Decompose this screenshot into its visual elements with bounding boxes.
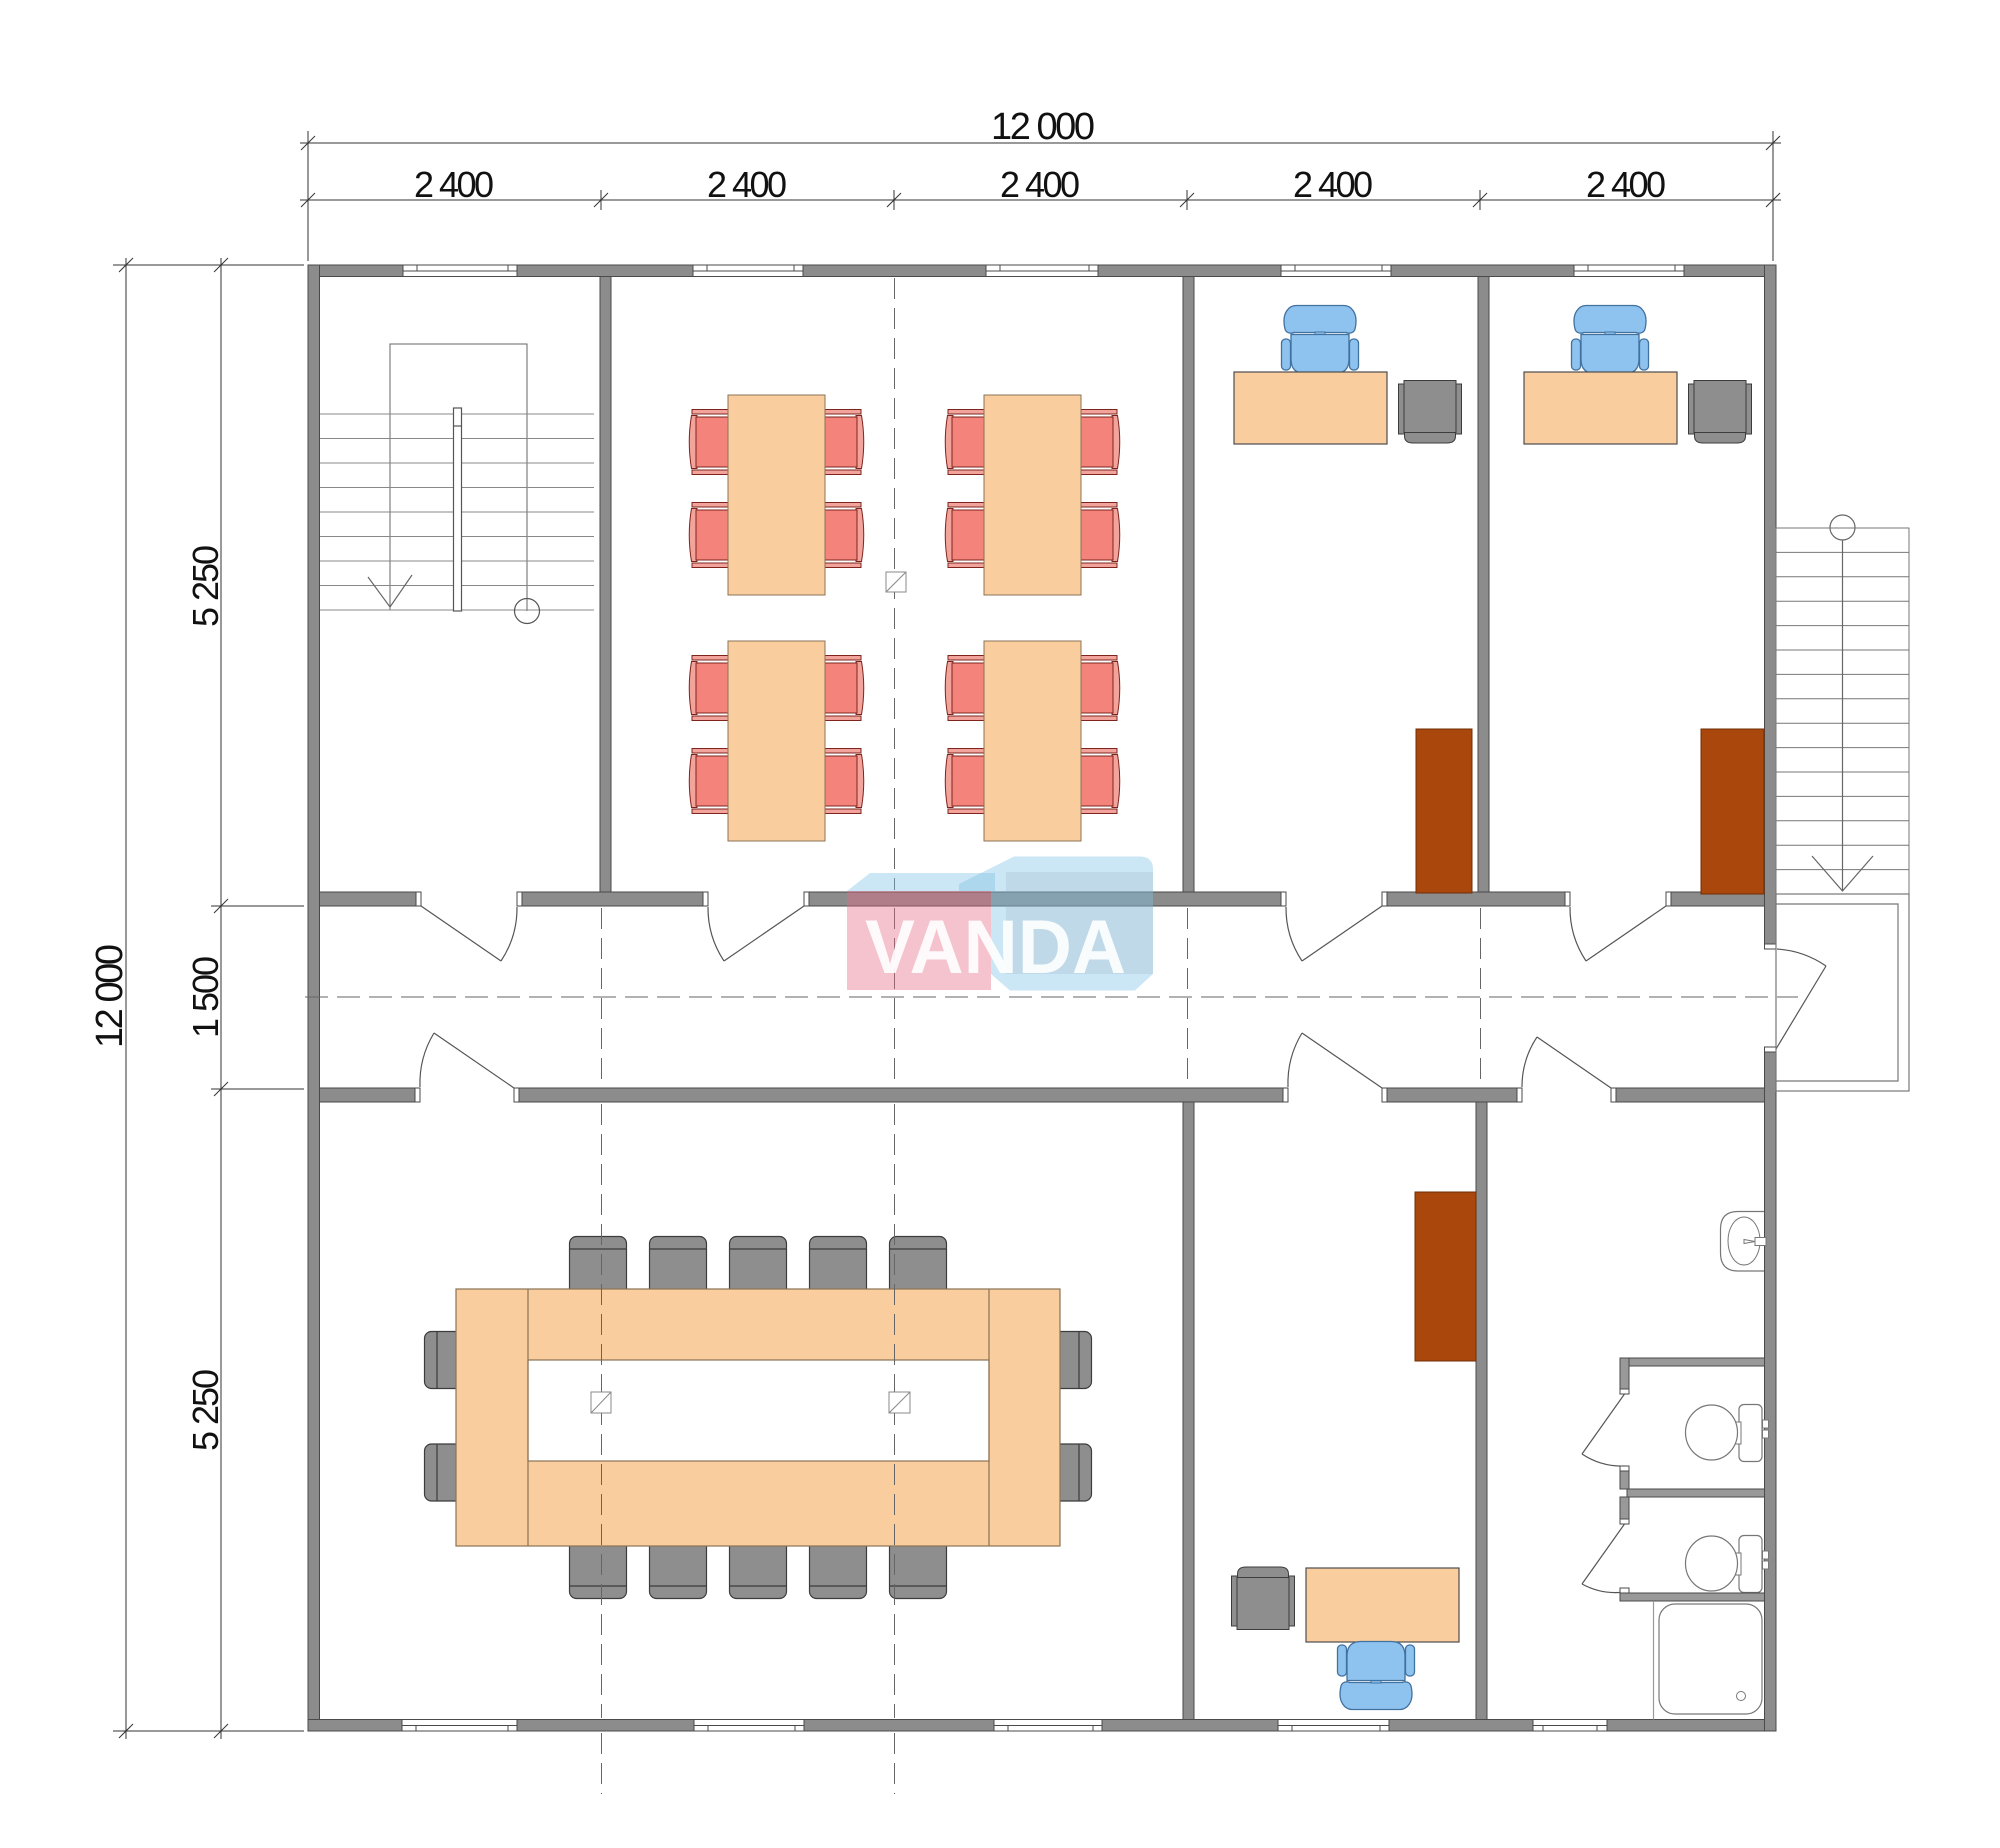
svg-text:2 400: 2 400 (707, 164, 787, 205)
svg-text:2 400: 2 400 (414, 164, 494, 205)
svg-text:12 000: 12 000 (991, 106, 1095, 148)
svg-text:2 400: 2 400 (1293, 164, 1373, 205)
svg-text:5 250: 5 250 (185, 545, 226, 627)
svg-text:2 400: 2 400 (1586, 164, 1666, 205)
svg-text:12 000: 12 000 (89, 944, 131, 1048)
svg-text:5 250: 5 250 (185, 1369, 226, 1451)
svg-text:VANDA: VANDA (865, 905, 1126, 990)
svg-text:2 400: 2 400 (1000, 164, 1080, 205)
svg-text:1 500: 1 500 (185, 956, 226, 1038)
